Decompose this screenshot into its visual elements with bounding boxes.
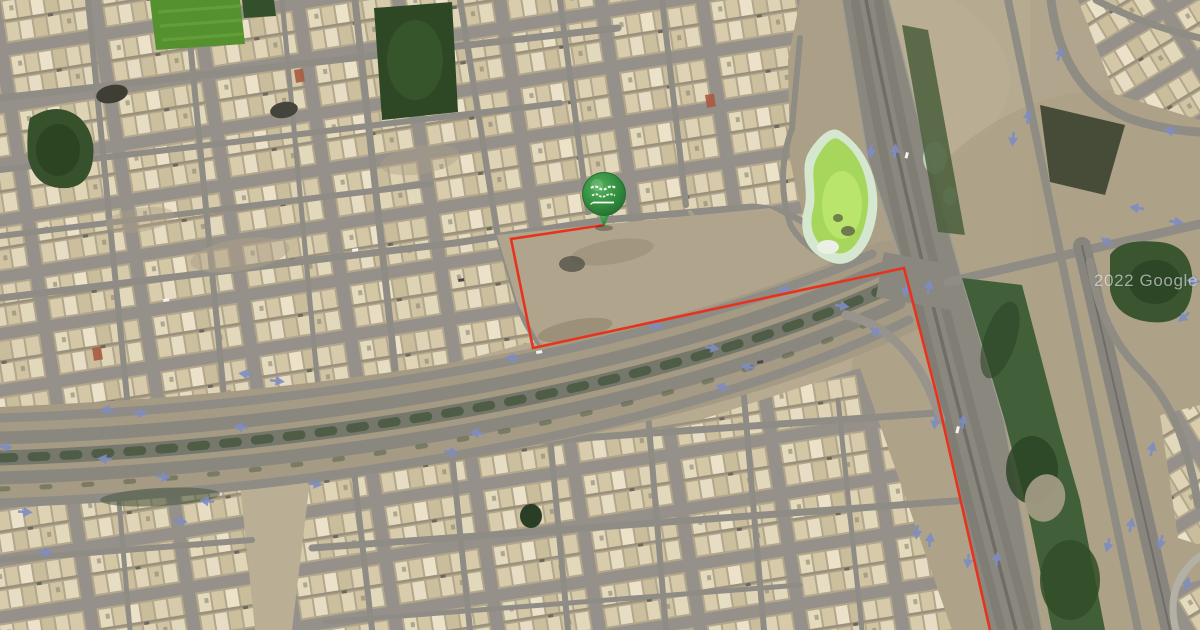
direction-arrow-icon <box>958 415 968 430</box>
direction-arrow-icon <box>1164 126 1179 136</box>
marker-balloon <box>583 173 626 216</box>
direction-arrow-icon <box>101 405 116 415</box>
direction-arrow-icon <box>0 442 12 452</box>
direction-arrow-icon <box>18 507 33 517</box>
direction-arrow-icon <box>1181 576 1193 592</box>
map-canvas[interactable]: 2022 Google <box>0 0 1200 630</box>
direction-arrow-icon <box>912 525 922 540</box>
direction-arrow-icon <box>1155 534 1167 550</box>
parcel-boundary-layer <box>511 225 990 630</box>
direction-arrow-icon <box>923 279 934 294</box>
marker-gloss <box>591 179 603 191</box>
direction-arrow-icon <box>1099 234 1116 249</box>
direction-arrow-icon <box>740 362 755 373</box>
direction-arrow-icon <box>133 408 148 418</box>
direction-arrow-icon <box>156 472 171 482</box>
direction-arrow-icon <box>1146 441 1158 457</box>
direction-arrow-icon <box>38 547 53 557</box>
parcel-boundary-line <box>511 225 990 630</box>
direction-arrow-icon <box>270 376 285 386</box>
direction-arrow-icon <box>234 422 249 432</box>
direction-arrow-icon <box>1125 517 1137 533</box>
location-marker-pin[interactable] <box>583 173 626 232</box>
direction-arrow-icon <box>1102 537 1114 553</box>
direction-arrow-icon <box>715 381 730 392</box>
direction-arrow-icon <box>172 516 187 527</box>
direction-arrow-icon <box>890 144 900 159</box>
direction-arrow-icon <box>1176 309 1192 325</box>
direction-arrow-icon <box>1053 46 1066 62</box>
direction-arrow-icon <box>1168 217 1183 228</box>
direction-arrow-icon <box>925 533 935 548</box>
map-annotations-layer <box>0 0 1200 630</box>
direction-arrow-icon <box>834 301 849 312</box>
direction-arrow-icon <box>963 554 973 569</box>
direction-arrow-icon <box>200 496 215 506</box>
direction-arrow-icon <box>1023 110 1033 125</box>
traffic-direction-arrows <box>0 46 1200 592</box>
direction-arrow-icon <box>98 454 113 464</box>
direction-arrow-icon <box>868 324 885 339</box>
direction-arrow-icon <box>992 552 1002 567</box>
direction-arrow-icon <box>930 415 940 430</box>
direction-arrow-icon <box>1187 276 1200 286</box>
direction-arrow-icon <box>444 447 459 457</box>
direction-arrow-icon <box>1008 132 1018 147</box>
direction-arrow-icon <box>704 343 719 354</box>
direction-arrow-icon <box>866 144 876 159</box>
direction-arrow-icon <box>1129 203 1144 214</box>
direction-arrow-icon <box>308 479 323 489</box>
direction-arrow-icon <box>239 369 254 379</box>
direction-arrow-icon <box>470 428 485 438</box>
direction-arrow-icon <box>506 353 521 363</box>
